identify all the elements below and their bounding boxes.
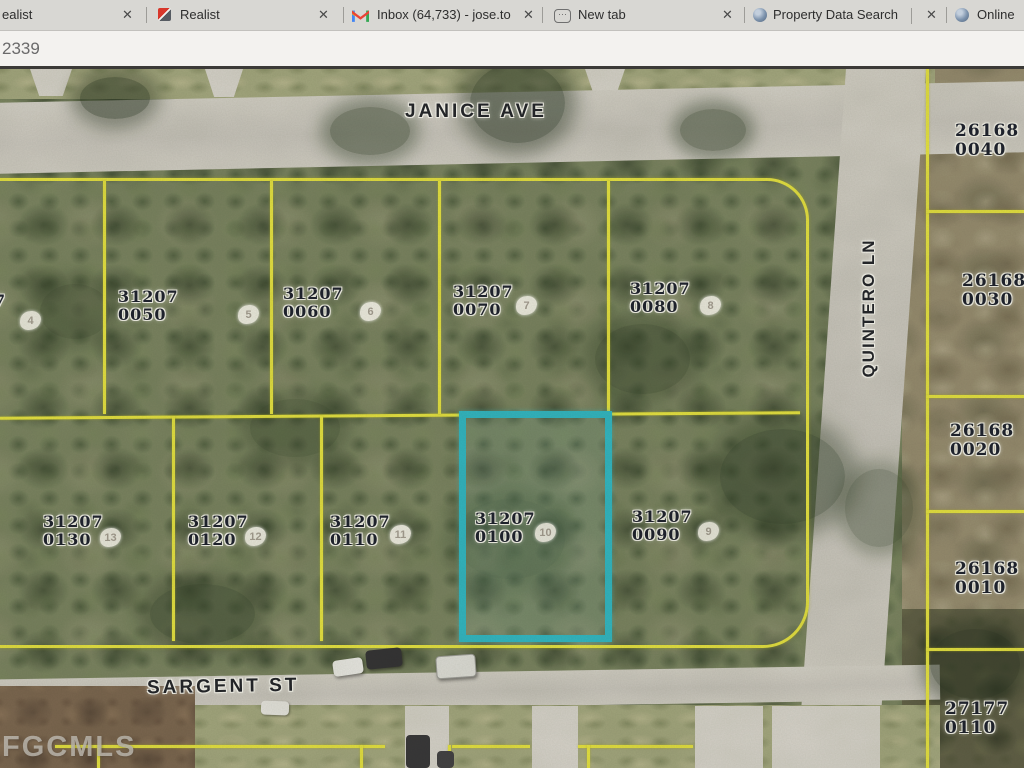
parcel-line <box>587 745 590 768</box>
close-icon[interactable]: ✕ <box>722 7 733 23</box>
parcel-label: 312070100 <box>475 510 536 546</box>
parcel-label: 312070060 <box>283 285 344 321</box>
parcel-line <box>452 745 530 748</box>
tab-separator <box>542 7 543 23</box>
globe-icon <box>753 8 767 22</box>
driveway <box>532 706 578 768</box>
tab-label: ealist <box>2 7 32 22</box>
tree-clump <box>680 109 746 151</box>
street-label-janice-ave: JANICE AVE <box>405 101 547 123</box>
tree-clump <box>930 629 1020 699</box>
tab-label: Property Data Search <box>773 7 898 22</box>
car <box>437 751 454 768</box>
parcel-label: 312070080 <box>630 280 691 316</box>
car <box>261 701 289 716</box>
tab-label: Realist <box>180 7 220 22</box>
parcel-line <box>926 395 1024 398</box>
watermark-fgcmls: FGCMLS <box>2 731 136 764</box>
parcel-label: 312070130 <box>43 513 104 549</box>
map-top-border <box>0 66 1024 69</box>
close-icon[interactable]: ✕ <box>318 7 329 23</box>
parcel-line <box>926 510 1024 513</box>
tab-label: Inbox (64,733) - jose.to <box>377 7 515 22</box>
gmail-icon <box>352 9 369 27</box>
parcel-line <box>578 745 693 748</box>
parcel-line <box>360 745 363 768</box>
car <box>406 735 430 768</box>
parcel-label: 7 <box>0 292 6 310</box>
close-icon[interactable]: ✕ <box>926 7 937 23</box>
parcel-label: 261680010 <box>955 560 1019 598</box>
tab-separator <box>946 7 947 23</box>
tree-clump <box>845 469 913 547</box>
tab-new-tab[interactable]: ⋯ New tab ✕ <box>546 0 740 30</box>
parcel-line <box>926 69 929 768</box>
address-bar[interactable]: 2339 <box>0 30 1024 67</box>
map-canvas[interactable]: JANICE AVE QUINTERO LN SARGENT ST 312070… <box>0 69 1024 768</box>
tab-gmail-inbox[interactable]: Inbox (64,733) - jose.to ✕ <box>347 0 539 30</box>
close-icon[interactable]: ✕ <box>122 7 133 23</box>
parcel-label: 261680030 <box>962 272 1024 310</box>
car <box>435 654 477 680</box>
tab-label: New tab <box>578 7 626 22</box>
parcel-line <box>607 181 610 414</box>
parcel-line <box>926 210 1024 213</box>
tab-separator <box>911 8 912 24</box>
address-fragment: 2339 <box>2 39 40 59</box>
parcel-line <box>270 181 273 414</box>
parcel-line <box>438 181 441 414</box>
globe-icon <box>955 8 969 22</box>
parcel-label: 312070090 <box>632 508 693 544</box>
tab-property-data-search[interactable]: Property Data Search ✕ <box>748 0 944 30</box>
parcel-line <box>926 648 1024 651</box>
parcel-line <box>172 416 175 641</box>
tab-label: Online <box>977 7 1015 22</box>
parcel-label: 261680040 <box>955 122 1019 160</box>
road-quintero-south <box>772 706 880 768</box>
parcel-line <box>103 181 106 414</box>
tree-clump <box>330 107 410 155</box>
parcel-label: 312070120 <box>188 513 249 549</box>
parcel-label: 312070110 <box>330 513 391 549</box>
tab-realist-partial[interactable]: ealist ✕ <box>0 0 145 30</box>
close-icon[interactable]: ✕ <box>523 7 534 23</box>
tab-separator <box>146 7 147 23</box>
tab-separator <box>343 7 344 23</box>
street-label-quintero-ln: QUINTERO LN <box>859 238 879 377</box>
browser-tab-bar: ealist ✕ Realist ✕ Inbox (64,733) - jose… <box>0 0 1024 31</box>
parcel-label: 312070070 <box>453 283 514 319</box>
street-label-sargent-st: SARGENT ST <box>147 675 300 700</box>
car <box>365 647 403 670</box>
parcel-line <box>320 416 323 641</box>
parcel-label: 312070050 <box>118 288 179 324</box>
realist-logo-icon <box>158 8 171 21</box>
driveway <box>695 706 763 768</box>
parcel-label: 271770110 <box>945 700 1009 738</box>
parcel-label: 261680020 <box>950 422 1014 460</box>
tab-online-partial[interactable]: Online <box>950 0 1024 30</box>
tab-realist[interactable]: Realist ✕ <box>150 0 340 30</box>
tab-separator <box>744 7 745 23</box>
new-tab-icon: ⋯ <box>554 9 571 23</box>
tree-clump <box>80 77 150 119</box>
